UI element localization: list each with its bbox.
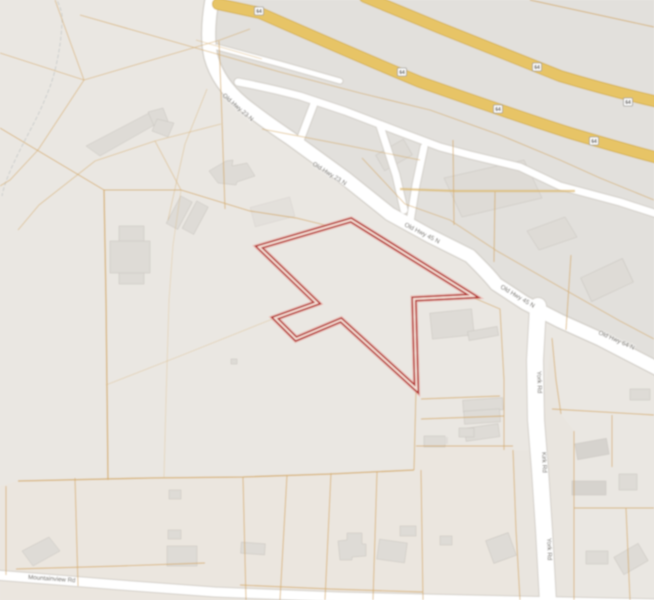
svg-text:64: 64 [534,65,540,71]
svg-text:64: 64 [625,100,631,106]
svg-text:64: 64 [256,9,262,15]
svg-text:York Rd: York Rd [535,371,543,394]
svg-text:64: 64 [495,107,501,113]
svg-text:York Rd: York Rd [545,538,553,561]
svg-text:64: 64 [399,70,405,76]
svg-text:64: 64 [591,139,597,145]
svg-text:Kirk Rd: Kirk Rd [540,452,548,474]
